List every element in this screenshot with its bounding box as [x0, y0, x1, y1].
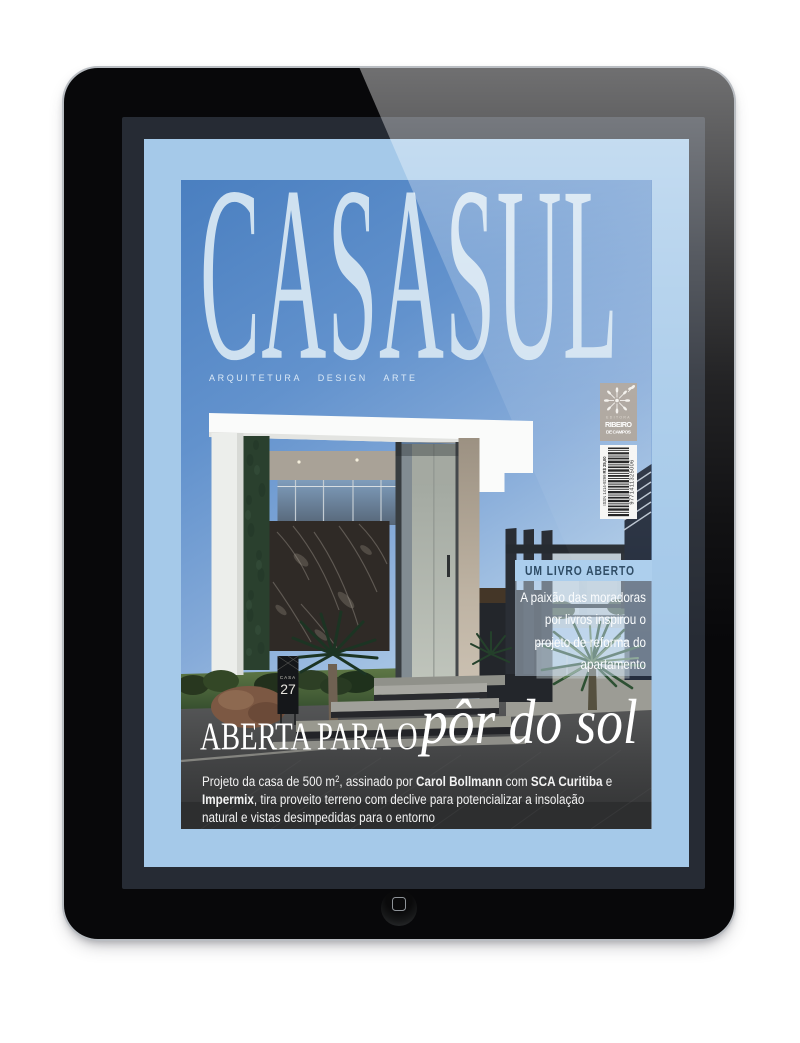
svg-text:27: 27: [280, 681, 296, 697]
svg-text:CASA: CASA: [280, 675, 296, 680]
